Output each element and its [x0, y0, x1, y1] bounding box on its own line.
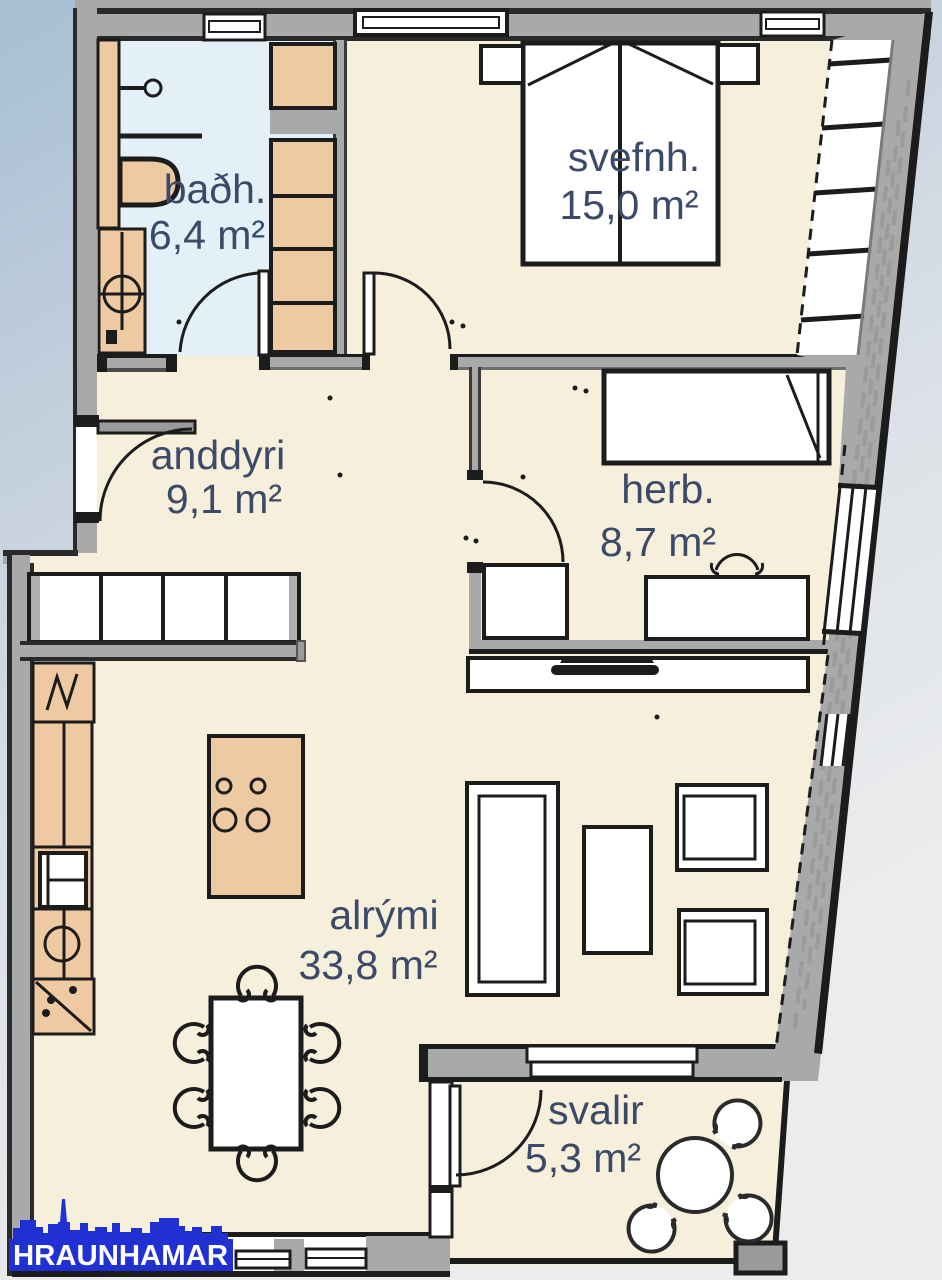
svg-text:5,3 m²: 5,3 m² [525, 1135, 641, 1181]
svg-text:herb.: herb. [621, 466, 714, 512]
svg-text:8,7 m²: 8,7 m² [600, 519, 716, 565]
svg-text:svefnh.: svefnh. [568, 134, 700, 180]
svg-text:baðh.: baðh. [164, 166, 267, 212]
svg-text:15,0 m²: 15,0 m² [560, 182, 699, 228]
svg-text:HRAUNHAMAR: HRAUNHAMAR [13, 1240, 228, 1272]
svg-text:9,1 m²: 9,1 m² [166, 476, 282, 522]
svg-text:svalir: svalir [548, 1087, 644, 1133]
svg-text:alrými: alrými [329, 892, 438, 938]
svg-text:6,4 m²: 6,4 m² [149, 212, 265, 258]
svg-text:anddyri: anddyri [151, 432, 285, 478]
svg-text:33,8 m²: 33,8 m² [299, 942, 438, 988]
